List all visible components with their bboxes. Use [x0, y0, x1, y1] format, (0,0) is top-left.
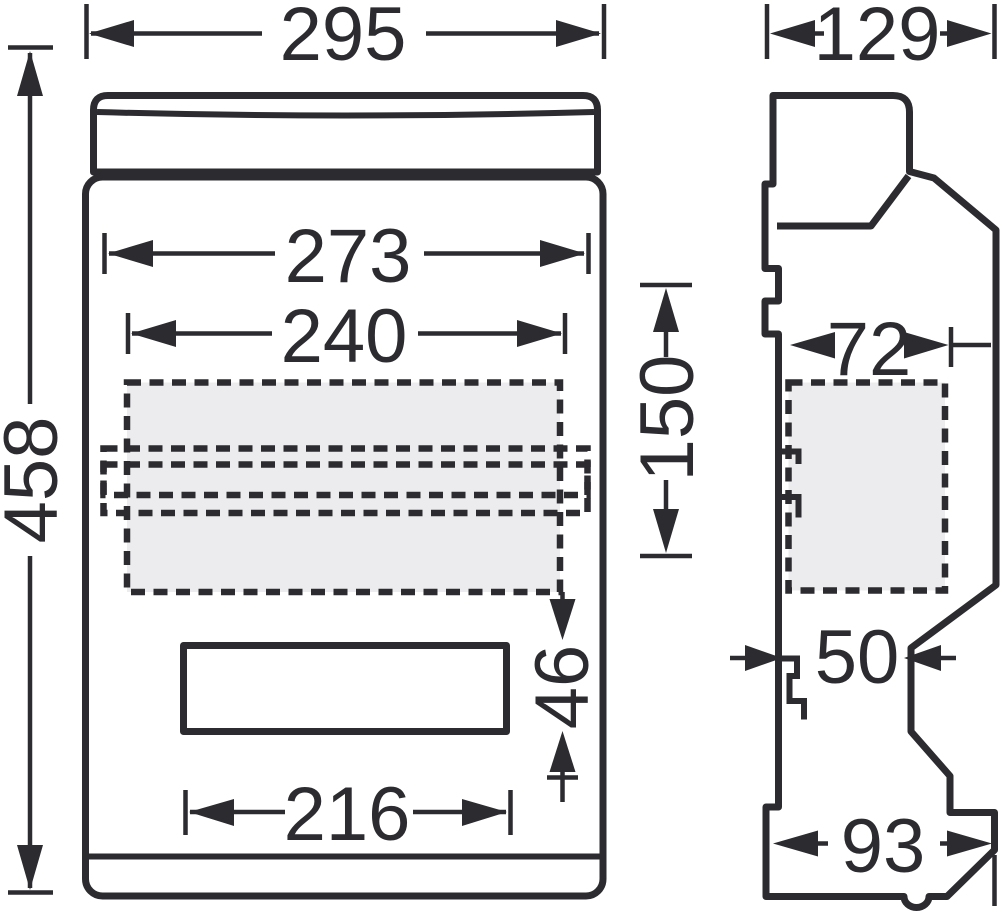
- dim-overall-height: 458: [0, 48, 74, 893]
- dim-295-label: 295: [280, 0, 407, 77]
- dim-72-label: 72: [827, 307, 912, 392]
- dimension-drawing-page: 295 458 273 240 150 46 216: [0, 0, 1000, 911]
- dim-295-arrow-right: [556, 20, 601, 47]
- side-component-area: [789, 383, 946, 591]
- side-view: [765, 96, 996, 908]
- dim-46-label: 46: [520, 645, 605, 730]
- dim-150-arrow-bottom: [653, 509, 679, 553]
- front-component-area: [127, 383, 560, 593]
- dim-rail-offset: 150: [625, 285, 710, 556]
- dim-458-arrow-top: [17, 51, 43, 96]
- dim-273-label: 273: [285, 214, 412, 299]
- dim-150-label: 150: [625, 355, 710, 482]
- dim-129-label: 129: [814, 0, 941, 77]
- dim-93-label: 93: [841, 804, 926, 889]
- dim-129-arrow-left: [770, 20, 815, 47]
- dim-458-label: 458: [0, 417, 74, 544]
- dim-216-label: 216: [284, 772, 411, 857]
- dim-overall-width: 295: [87, 0, 605, 77]
- technical-drawing: 295 458 273 240 150 46 216: [0, 0, 1000, 911]
- dim-129-arrow-right: [947, 20, 992, 47]
- dim-150-arrow-top: [653, 288, 679, 332]
- dim-overall-depth: 129: [767, 0, 995, 77]
- dim-240-label: 240: [281, 294, 408, 379]
- front-lid-inner-line: [97, 112, 594, 116]
- dim-50-label: 50: [815, 615, 900, 700]
- dim-458-arrow-bottom: [17, 845, 43, 890]
- front-lid-outline: [94, 96, 598, 173]
- dim-295-arrow-left: [89, 20, 134, 47]
